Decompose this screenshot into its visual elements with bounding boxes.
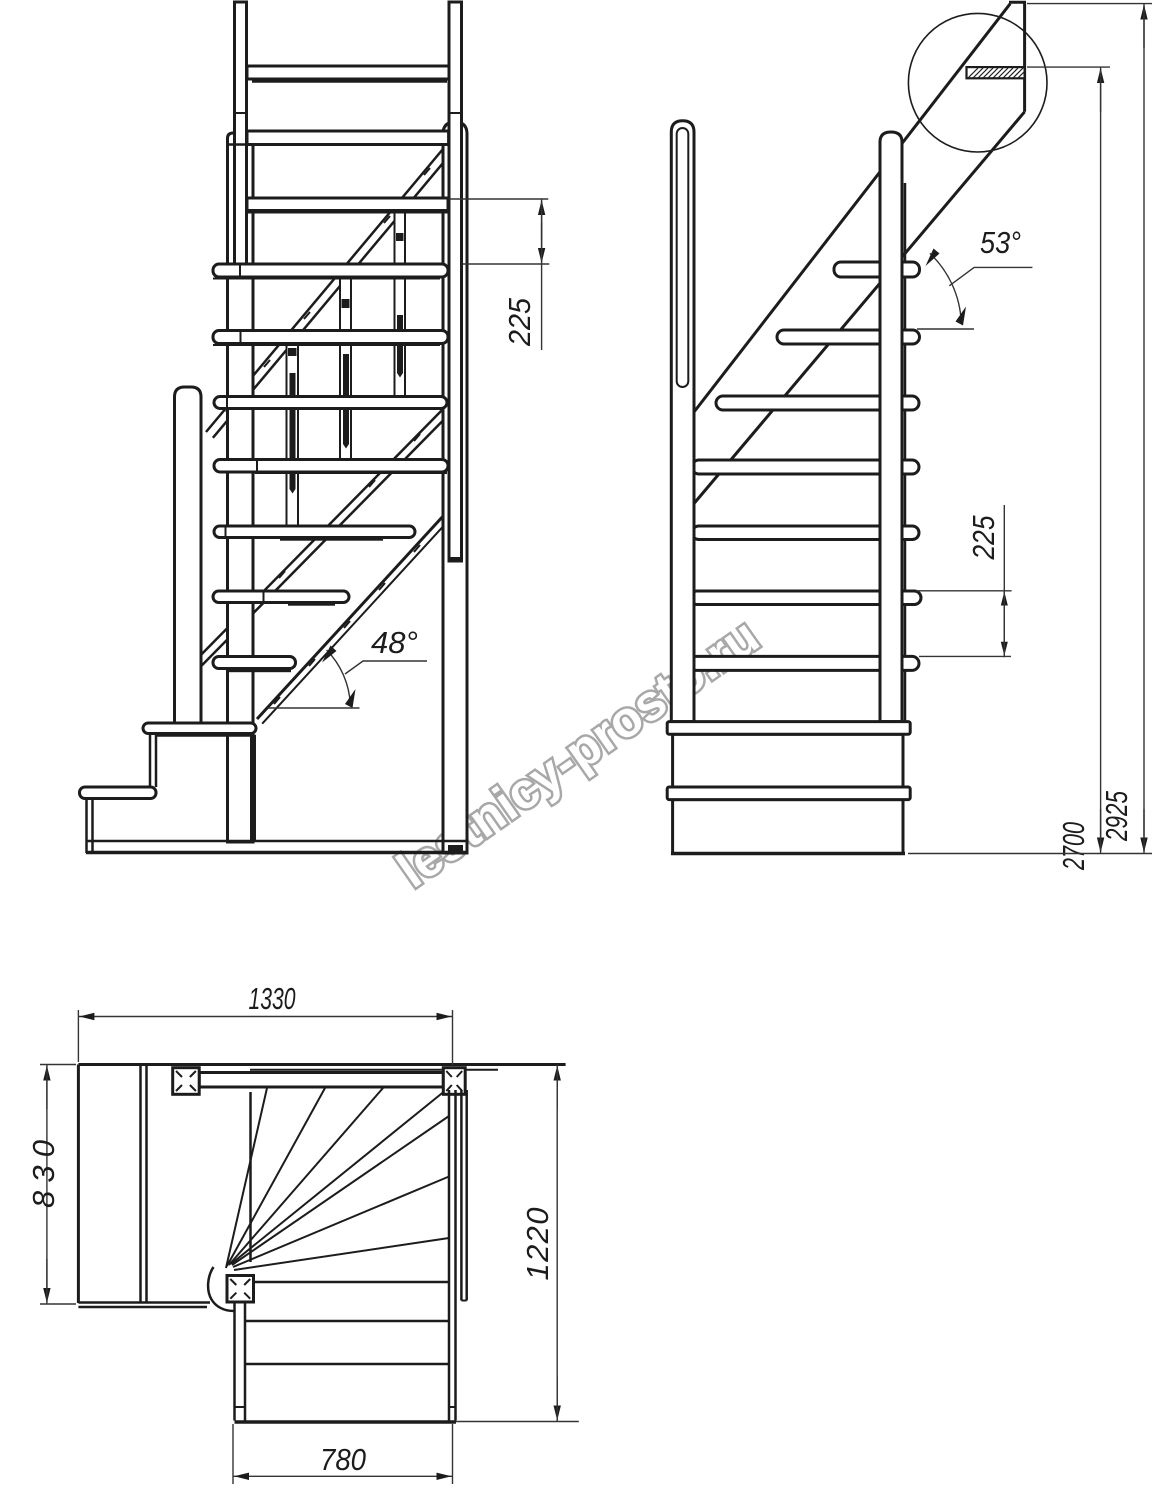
svg-text:53°: 53°: [980, 225, 1021, 260]
svg-text:2700: 2700: [1056, 822, 1091, 871]
svg-text:225: 225: [502, 297, 537, 347]
svg-text:780: 780: [320, 1442, 366, 1477]
svg-text:1220: 1220: [520, 1208, 555, 1281]
svg-text:830: 830: [26, 1140, 61, 1208]
svg-text:48°: 48°: [371, 625, 418, 660]
svg-text:1330: 1330: [249, 981, 296, 1016]
svg-text:225: 225: [966, 515, 1001, 560]
svg-text:2925: 2925: [1099, 790, 1134, 841]
